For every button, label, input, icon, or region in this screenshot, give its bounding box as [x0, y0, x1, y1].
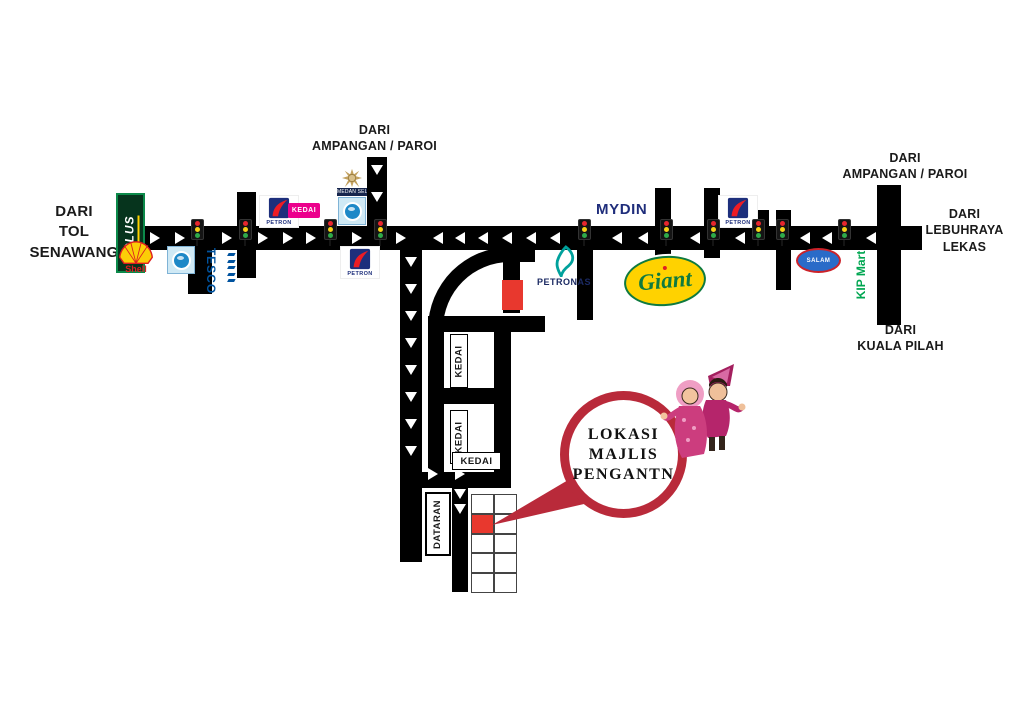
medan-selera-label: MEDAN SELERA: [337, 188, 367, 196]
wedding-location-map: DARI TOL SENAWANG DARI AMPANGAN / PAROI …: [0, 0, 1024, 723]
petron-flame-icon: [726, 197, 750, 219]
traffic-light-icon: [660, 219, 672, 247]
food-plate-icon: [167, 246, 195, 274]
dataran-sign: DATARAN: [425, 492, 451, 556]
down-arrow-icon: [405, 311, 417, 321]
left-arrow-icon: [800, 232, 810, 244]
left-arrow-icon: [550, 232, 560, 244]
traffic-light-icon: [838, 219, 850, 247]
state-crest-icon: [340, 168, 364, 188]
tesco-store: TESCO: [200, 246, 222, 296]
red-building-marker: [502, 280, 523, 310]
label-dari-lebuhraya-lekas: DARI LEBUHRAYA LEKAS: [912, 206, 1017, 255]
shop-row-road-1: [428, 316, 545, 332]
left-arrow-icon: [690, 232, 700, 244]
food-court-plate-icon: [338, 197, 366, 225]
right-arrow-icon: [306, 232, 316, 244]
down-arrow-icon: [405, 338, 417, 348]
shell-icon: [116, 241, 156, 265]
down-arrow-icon: [405, 392, 417, 402]
traffic-light-icon: [374, 219, 386, 247]
kedai-row-2-label: KEDAI: [454, 421, 465, 453]
wedding-couple-illustration: [646, 362, 748, 474]
left-arrow-icon: [478, 232, 488, 244]
left-arrow-icon: [735, 232, 745, 244]
lot-cell: [471, 553, 494, 573]
lot-cell: [494, 553, 517, 573]
kedai-pink-sign: KEDAI: [288, 203, 320, 218]
right-arrow-icon: [175, 232, 185, 244]
traffic-light-icon: [324, 219, 336, 247]
salam-sign: SALAM: [796, 248, 841, 273]
down-arrow-icon: [454, 489, 466, 499]
right-arrow-icon: [258, 232, 268, 244]
label-dari-tol-senawang: DARI TOL SENAWANG: [28, 202, 120, 263]
left-arrow-icon: [638, 232, 648, 244]
shell-station: Shell: [110, 241, 162, 274]
giant-label: Giant: [637, 266, 693, 297]
label-dari-kuala-pilah: DARI KUALA PILAH: [838, 322, 963, 355]
tesco-label: TESCO: [204, 248, 218, 294]
medan-selera-sign: MEDAN SELERA: [337, 168, 367, 225]
left-arrow-icon: [433, 232, 443, 244]
traffic-light-icon: [752, 219, 764, 247]
down-arrow-icon: [405, 257, 417, 267]
shop-row-road-2: [428, 388, 511, 404]
lot-cell: [471, 573, 494, 593]
traffic-light-icon: [776, 219, 788, 247]
left-arrow-icon: [502, 232, 512, 244]
kedai-row-1-label: KEDAI: [454, 345, 465, 377]
lot-cell: [471, 534, 494, 554]
label-dari-ampangan-top: DARI AMPANGAN / PAROI: [297, 122, 452, 155]
down-arrow-icon: [405, 365, 417, 375]
petronas-label: PETRONAS: [537, 277, 591, 287]
down-arrow-icon: [405, 284, 417, 294]
down-arrow-icon: [405, 419, 417, 429]
petron-label: PETRON: [725, 220, 750, 226]
down-arrow-icon: [405, 446, 417, 456]
lot-cell: [494, 573, 517, 593]
right-arrow-icon: [283, 232, 293, 244]
giant-store: Giant: [622, 253, 708, 310]
petronas-drop-icon: [549, 245, 579, 277]
left-arrow-icon: [455, 232, 465, 244]
kipmart-store: KIP Mart: [850, 242, 872, 308]
traffic-light-icon: [578, 219, 590, 247]
right-arrow-icon: [352, 232, 362, 244]
shell-label: Shell: [125, 264, 147, 274]
down-arrow-icon: [371, 192, 383, 202]
dataran-label: DATARAN: [433, 499, 444, 548]
rest-area-sign: [167, 246, 195, 274]
right-arrow-icon: [396, 232, 406, 244]
down-arrow-icon: [454, 504, 466, 514]
taman-main-road: [400, 250, 422, 562]
left-arrow-icon: [526, 232, 536, 244]
down-arrow-icon: [371, 165, 383, 175]
kipmart-label: KIP Mart: [854, 251, 868, 299]
kuala-pilah-road: [877, 185, 901, 325]
mydin-store: MYDIN: [596, 201, 647, 218]
petron-label: PETRON: [266, 220, 291, 226]
petron-station-2: PETRON: [340, 246, 380, 279]
petron-label: PETRON: [347, 271, 372, 277]
traffic-light-icon: [707, 219, 719, 247]
traffic-light-icon: [239, 219, 251, 247]
kedai-row-1: KEDAI: [450, 334, 468, 388]
right-arrow-icon: [428, 468, 438, 480]
label-dari-ampangan-right: DARI AMPANGAN / PAROI: [825, 150, 985, 183]
right-arrow-icon: [222, 232, 232, 244]
left-arrow-icon: [822, 232, 832, 244]
tesco-dashes-icon: [228, 253, 235, 282]
lot-cell: [494, 534, 517, 554]
traffic-light-icon: [191, 219, 203, 247]
left-arrow-icon: [612, 232, 622, 244]
petronas-station: PETRONAS: [536, 245, 592, 287]
petron-flame-icon: [348, 248, 372, 270]
